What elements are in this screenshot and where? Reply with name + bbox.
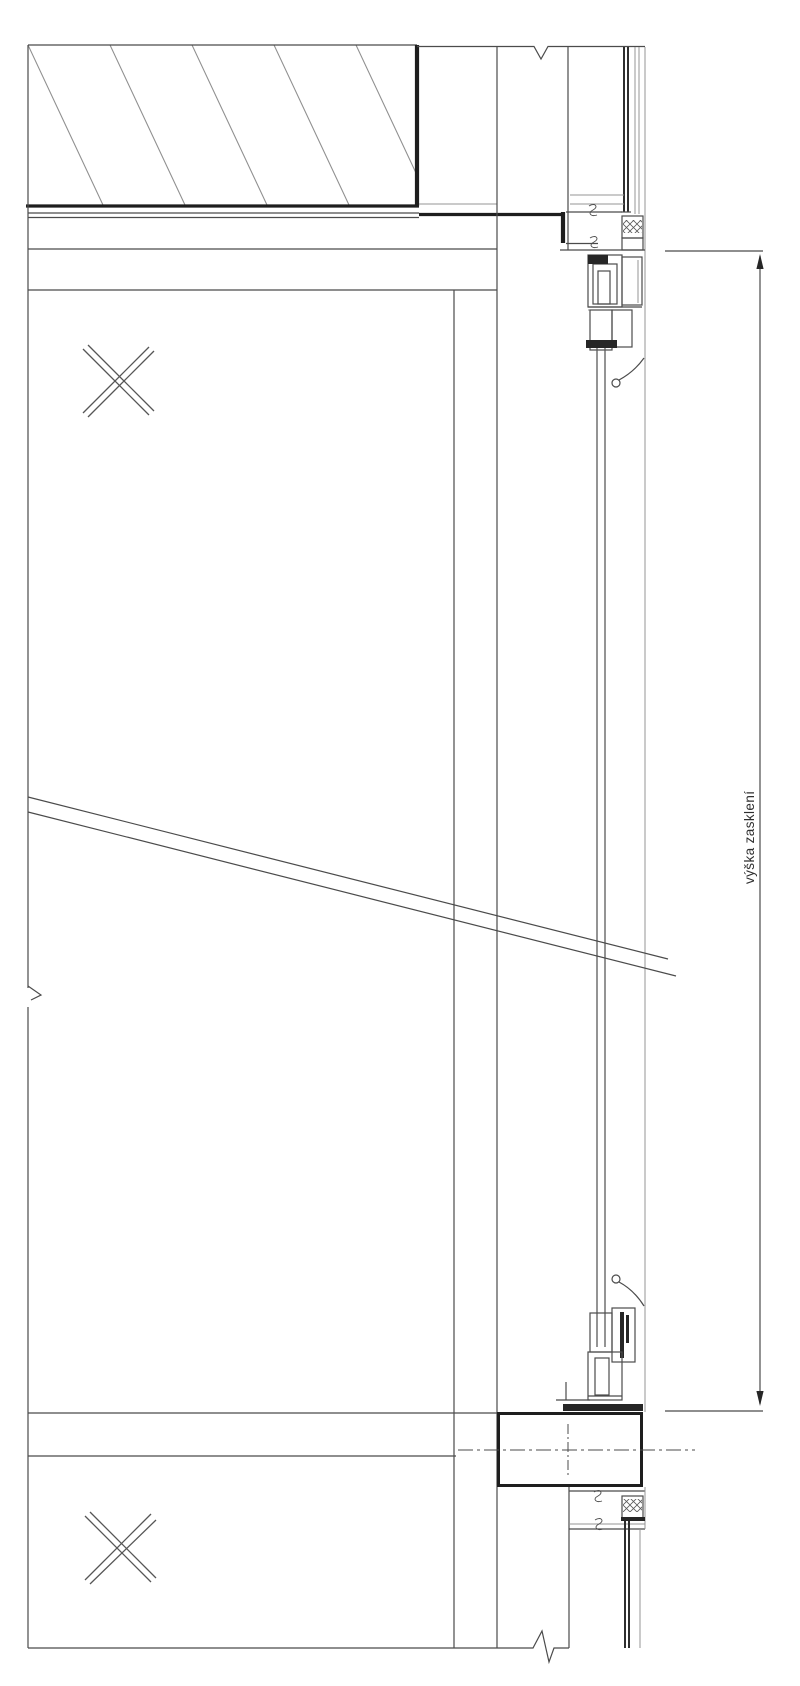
- glass-pane: [597, 348, 605, 1347]
- insulation-cross-bottom: [85, 1512, 156, 1584]
- ceiling-lines: [28, 204, 563, 290]
- dimension-arrow-bottom: [756, 1391, 763, 1406]
- dimension-arrow-top: [756, 254, 763, 269]
- sash-profile-top: [586, 255, 644, 387]
- dimension-glazing-height: výška zasklení: [665, 251, 764, 1411]
- steel-support-section: [458, 1414, 695, 1486]
- sash-profile-bottom: [556, 1275, 644, 1411]
- insulation-cross-top: [83, 345, 154, 417]
- frame-base-profile: [569, 1487, 645, 1648]
- architectural-section-drawing: výška zasklení: [0, 0, 800, 1686]
- frame-head-profile: [417, 47, 645, 1413]
- dimension-label: výška zasklení: [742, 791, 757, 884]
- sash-opening-diagonal: [28, 797, 676, 976]
- concrete-slab-section: [26, 45, 419, 206]
- wall-left-line: [28, 45, 41, 1648]
- reveal-lines: [454, 47, 497, 1648]
